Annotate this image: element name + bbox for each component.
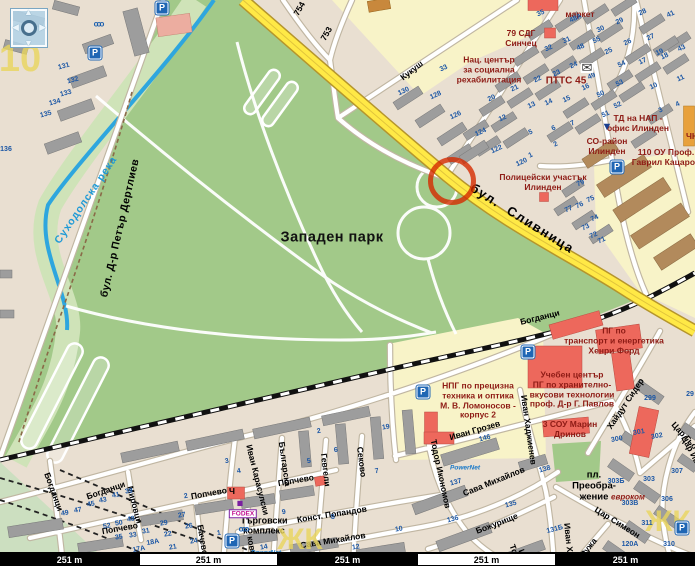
building-number: 131 — [57, 62, 70, 73]
building-number: 137 — [449, 478, 462, 489]
street-label: Хайдут Сидер — [605, 377, 646, 432]
building-number: 33 — [128, 531, 137, 540]
building-number: 10 — [394, 525, 403, 534]
building-number: 45 — [86, 500, 95, 509]
street-label: Иван Карасулски — [244, 444, 271, 516]
building-number: 26 — [623, 38, 633, 49]
building-number: 71 — [597, 236, 607, 247]
street-label: 754 — [292, 0, 308, 17]
street-label: Сава Михайлов — [462, 465, 527, 499]
pan-down-arrow-icon[interactable]: ▼ — [24, 39, 33, 48]
building-number: 303 — [643, 476, 655, 484]
building-number: 135 — [504, 500, 517, 511]
building-number: 2 — [316, 428, 321, 437]
building-number: 3 — [658, 107, 665, 116]
building-number: 41 — [111, 491, 120, 500]
street-label: Богданци — [519, 308, 560, 327]
scale-segment: 251 m — [139, 553, 278, 566]
street-label: бул. Сливница — [467, 181, 577, 257]
poi-label: СО-район Илинден — [587, 137, 628, 157]
depot-icon: ooo — [94, 20, 103, 29]
building-number: 47 — [73, 506, 82, 515]
building-number: 30 — [596, 25, 606, 36]
building-number: 25 — [604, 47, 614, 58]
poi-label: Нац. център за социална рехабилитация — [457, 55, 522, 84]
parking-icon: P — [156, 2, 169, 15]
building-number: 14 — [544, 98, 554, 109]
building-number: 4 — [675, 101, 682, 110]
building-number: 19 — [381, 423, 390, 432]
building-number: 300 — [611, 435, 624, 445]
water-label: Суходолска река — [52, 154, 120, 246]
building-number: 53 — [615, 79, 625, 90]
building-number: 74 — [590, 214, 600, 225]
building-number: 11 — [676, 74, 686, 84]
building-number: 2 — [553, 141, 560, 150]
street-label: бул. Д-р Петър Дертлиев — [98, 158, 142, 299]
building-number: 307 — [671, 468, 683, 476]
street-label: Мировци — [125, 485, 144, 525]
street-label: Секово — [354, 446, 367, 477]
building-number: 18 — [660, 52, 670, 63]
building-number: 5 — [528, 129, 535, 138]
post-office-icon: ✉ — [581, 63, 594, 73]
building-number: 1 — [528, 152, 535, 161]
parking-icon: P — [89, 47, 102, 60]
building-number: 22 — [163, 530, 172, 539]
building-number: 1 — [216, 530, 221, 539]
poi-label: 79 СДГ Синчец — [505, 29, 536, 49]
street-label: Тодор Икономов — [428, 439, 452, 510]
building-number: 50 — [114, 519, 123, 528]
building-number: 310 — [663, 541, 675, 549]
poi-label: 110 ОУ Проф. Гаврил Кацаров — [632, 148, 695, 168]
street-label: Цар Симеон — [593, 505, 642, 541]
building-number: 21 — [510, 84, 520, 95]
building-number: 303Б — [608, 478, 625, 486]
parking-icon: P — [676, 522, 689, 535]
poi-label: ЧН — [686, 132, 695, 142]
building-number: 52 — [613, 101, 623, 112]
pan-up-arrow-icon[interactable]: ▲ — [24, 8, 33, 17]
street-label: Цар Гьо — [669, 420, 695, 451]
building-number: 22 — [533, 75, 543, 86]
building-number: 43 — [98, 496, 107, 505]
building-number: 128 — [429, 90, 443, 102]
building-number: 126 — [449, 110, 463, 122]
building-number: 75 — [586, 195, 596, 206]
building-number: 135 — [39, 110, 52, 121]
parking-icon: P — [417, 386, 430, 399]
building-number: 303В — [622, 500, 639, 508]
building-number: 48А — [568, 13, 583, 26]
building-number: 138 — [538, 465, 551, 476]
poi-label: Полицейски участък Илинден — [499, 173, 586, 193]
street-label: Попчево — [101, 521, 139, 537]
building-number: 73 — [581, 223, 591, 234]
poi-label: Учебен център ПГ по хранително- вкусови … — [530, 370, 615, 409]
building-number: 29 — [615, 17, 625, 28]
building-number: 299 — [644, 395, 656, 403]
street-label: пл. Преобра- жение — [572, 471, 616, 504]
building-number: 28 — [638, 8, 648, 19]
building-number: 20 — [487, 94, 497, 105]
building-number: 16 — [581, 83, 591, 94]
building-number: 131Б — [546, 524, 564, 536]
parking-icon: P — [611, 161, 624, 174]
building-number: 136 — [446, 515, 459, 526]
building-number: 3 — [224, 458, 229, 467]
building-number: 120А — [622, 541, 639, 549]
building-number: 2 — [183, 493, 188, 502]
map-pan-control[interactable]: ▲ ▼ ◀ ▶ — [10, 8, 48, 48]
building-number: 51 — [601, 110, 611, 121]
building-number: 4 — [236, 468, 241, 477]
building-number: 302 — [651, 432, 664, 442]
street-label: Гевгели — [318, 453, 332, 487]
building-number: 7 — [374, 468, 379, 477]
building-number: 43 — [677, 44, 687, 55]
street-label: Попчево — [277, 473, 315, 489]
watermark: ЖК — [645, 505, 690, 540]
poi-label: НПГ по прецизна техника и оптика М. В. Л… — [440, 381, 516, 420]
building-number: 8 — [330, 514, 335, 523]
building-number: 6 — [551, 125, 558, 134]
scale-segment: 251 m — [0, 553, 139, 566]
building-number: 29 — [686, 391, 694, 399]
building-number: 27 — [177, 511, 186, 520]
building-number: 5 — [306, 458, 311, 467]
building-number: 33 — [439, 64, 449, 75]
building-number: 27 — [646, 33, 656, 44]
pan-left-arrow-icon[interactable]: ◀ — [12, 23, 19, 32]
poi-label: ТД на НАП - офис Илинден — [607, 114, 669, 134]
building-number: 24 — [189, 537, 198, 546]
scale-bar: 251 m251 m251 m251 m251 m — [0, 552, 695, 566]
building-number: 311 — [641, 520, 652, 528]
building-number: 132 — [66, 76, 79, 87]
building-number: 49 — [587, 72, 597, 83]
building-number: 31 — [141, 527, 150, 536]
building-number: 55 — [592, 36, 602, 47]
poi-label: ПГ по транспорт и енергетика Хенри Форд — [564, 326, 664, 355]
street-label: Иван Хаджиенев — [518, 395, 537, 466]
street-label: Кукуш — [399, 59, 425, 83]
street-label: Божурище — [475, 512, 520, 537]
building-number: 15 — [562, 95, 572, 106]
street-label: Цар Ив — [679, 434, 695, 465]
building-number: 48 — [576, 43, 586, 54]
building-number: 35 — [536, 9, 546, 20]
building-number: 10 — [649, 82, 659, 93]
building-number: 72 — [589, 231, 599, 242]
building-number: 35 — [114, 533, 123, 542]
street-label: Иван Грозев — [449, 419, 502, 443]
parking-icon: P — [522, 346, 535, 359]
building-number: 146 — [478, 434, 491, 445]
street-label: Ч — [229, 487, 235, 497]
depot-icon: ooo — [239, 525, 248, 534]
building-number: 301 — [633, 428, 646, 438]
scale-segment: 251 m — [556, 553, 695, 566]
building-number: 24 — [569, 61, 579, 72]
building-number: 18А — [146, 538, 160, 548]
building-number: 79 — [576, 179, 586, 190]
scale-segment: 251 m — [417, 553, 556, 566]
building-number: 120 — [515, 157, 529, 169]
compass-ring-icon[interactable] — [21, 20, 37, 36]
building-number: 48 — [126, 515, 135, 524]
poi-label: евроком — [611, 492, 645, 501]
street-label: Богданци — [85, 480, 126, 502]
street-label: Богданци — [42, 471, 65, 512]
poi-label: маркет — [565, 10, 594, 20]
building-number: 23 — [552, 69, 562, 80]
building-number: 32 — [544, 44, 554, 55]
building-number: 17 — [638, 57, 648, 68]
building-number: 122 — [490, 144, 504, 156]
fodex-logo: FODEX — [229, 509, 257, 518]
building-number: 133 — [59, 89, 72, 100]
powernet-logo: PowerNet — [450, 464, 480, 471]
building-number: 19 — [655, 48, 665, 59]
building-number: 134 — [48, 98, 61, 109]
building-number: 12 — [498, 114, 508, 125]
building-number: 76 — [575, 201, 585, 212]
fodex-mark-icon: ◼ — [237, 499, 244, 508]
building-number: 29 — [159, 519, 168, 528]
pan-right-arrow-icon[interactable]: ▶ — [39, 23, 46, 32]
street-label: Конст. Попандов — [296, 505, 367, 526]
label-layer: бул. Д-р Петър Дертлиевбул. СливницаКуку… — [0, 0, 695, 566]
building-number: 13 — [527, 101, 537, 112]
building-number: 52 — [102, 522, 111, 531]
building-number: 50 — [596, 90, 606, 101]
building-number: 26 — [184, 522, 193, 531]
parking-icon: P — [226, 535, 239, 548]
map-canvas[interactable]: бул. Д-р Петър Дертлиевбул. СливницаКуку… — [0, 0, 695, 566]
street-label: Търговски комплекс — [240, 516, 287, 537]
building-number: 6 — [333, 447, 338, 456]
building-number: 39 — [124, 487, 133, 496]
building-number: 124 — [474, 127, 488, 139]
building-number: 306 — [661, 496, 673, 504]
building-number: 54 — [617, 60, 627, 71]
building-number: 9 — [281, 509, 286, 518]
building-number: 7 — [570, 120, 577, 129]
street-label: Сава Михайлов — [300, 531, 367, 551]
poi-marker-icon: ▼ — [602, 121, 613, 133]
street-label: Българска — [276, 441, 292, 487]
scale-segment: 251 m — [278, 553, 417, 566]
building-number: 31 — [562, 36, 572, 47]
building-number: 77 — [564, 205, 574, 216]
building-number: 130 — [397, 86, 411, 98]
building-number: 49 — [60, 509, 69, 518]
poi-label: ПТТС 45 — [546, 75, 587, 87]
street-label: 753 — [319, 25, 335, 42]
park-name: Западен парк — [281, 230, 384, 247]
poi-label: 3 СОУ Марин Дринов — [543, 420, 598, 440]
street-label: Попчево — [190, 486, 228, 502]
building-number: 41 — [666, 10, 676, 21]
building-number: 136 — [0, 146, 12, 154]
